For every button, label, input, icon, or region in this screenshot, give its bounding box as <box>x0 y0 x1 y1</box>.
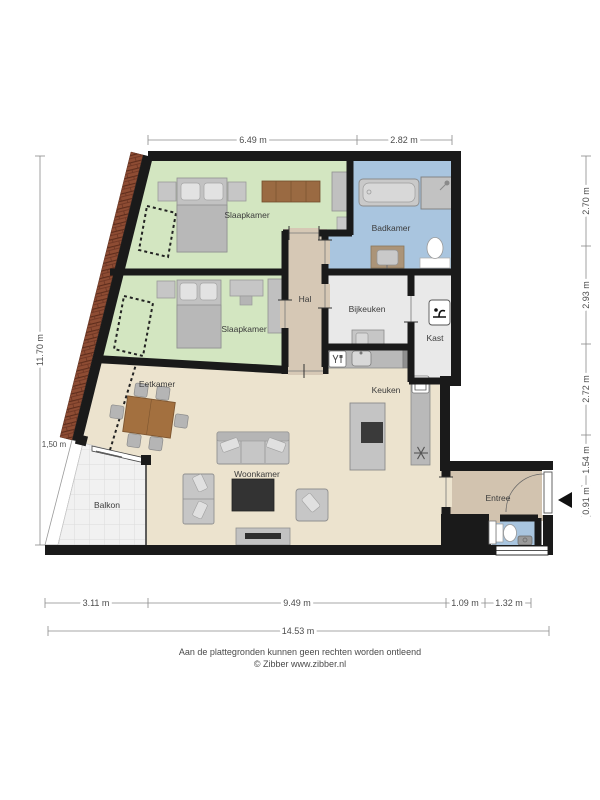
dishwasher-icon <box>329 351 346 367</box>
floors <box>83 155 552 545</box>
bed-blanket <box>177 305 221 348</box>
vanity-sink <box>377 250 398 265</box>
room-label-balkon: Balkon <box>94 500 120 510</box>
room-label-bijkeuken: Bijkeuken <box>349 304 386 314</box>
dim-right-4: 1.54 m <box>581 446 591 474</box>
toilet-tank <box>496 524 503 542</box>
coat-hook-icon <box>429 300 450 325</box>
toilet-bowl <box>427 238 443 259</box>
nightstand <box>158 182 176 201</box>
dim-bottom-total: 14.53 m <box>282 626 315 636</box>
dim-bottom-3: 1.09 m <box>451 598 479 608</box>
desk <box>230 280 263 296</box>
pillow <box>180 283 197 300</box>
toilet-base <box>420 258 450 268</box>
bed-blanket <box>177 205 227 252</box>
dim-top-1: 6.49 m <box>239 135 267 145</box>
washer-inner <box>356 333 368 345</box>
entry-door-leaf <box>544 472 552 513</box>
dining-chair <box>174 414 189 429</box>
dining-chair <box>127 433 142 448</box>
pillow <box>204 183 223 200</box>
pillow <box>181 183 200 200</box>
dining-chair <box>149 436 164 451</box>
floorplan-page: Slaapkamer Badkamer Hal Slaapkamer Bijke… <box>0 0 600 800</box>
room-label-woonkamer: Woonkamer <box>234 469 280 479</box>
dim-bottom-2: 9.49 m <box>283 598 311 608</box>
floorplan-drawing: Slaapkamer Badkamer Hal Slaapkamer Bijke… <box>0 0 600 800</box>
room-label-badkamer: Badkamer <box>372 223 411 233</box>
coffee-table <box>232 479 274 511</box>
footer-copyright: © Zibber www.zibber.nl <box>254 659 346 669</box>
dim-right-1: 2.70 m <box>581 187 591 215</box>
dim-right-3: 2.72 m <box>581 375 591 403</box>
room-kast <box>412 272 454 381</box>
cooktop <box>361 422 383 443</box>
dim-bottom-1: 3.11 m <box>83 598 110 608</box>
shelf <box>337 217 348 230</box>
toilet-bowl <box>504 525 517 542</box>
dim-top-2: 2.82 m <box>390 135 418 145</box>
dim-balkon: 1,50 m <box>42 440 67 449</box>
dim-right-2: 2.93 m <box>581 281 591 309</box>
dim-right-5: 0.91 m <box>581 487 591 515</box>
room-label-hal: Hal <box>299 294 312 304</box>
nightstand <box>228 182 246 201</box>
pillow <box>200 283 217 300</box>
dim-left-total: 11.70 m <box>35 334 45 366</box>
room-label-eetkamer: Eetkamer <box>139 379 176 389</box>
room-label-slaapkamer-boven: Slaapkamer <box>224 210 270 220</box>
desk-chair <box>240 296 252 305</box>
footer-disclaimer: Aan de plattegronden kunnen geen rechten… <box>179 647 421 657</box>
room-label-keuken: Keuken <box>372 385 401 395</box>
toilet-sink <box>518 536 532 545</box>
wall-block-toilet <box>441 514 491 546</box>
room-label-slaapkamer-onder: Slaapkamer <box>221 324 267 334</box>
nightstand <box>157 281 175 298</box>
sofa-back <box>217 432 289 441</box>
dining-chair <box>110 405 125 420</box>
dim-bottom-4: 1.32 m <box>495 598 523 608</box>
toilet-door-leaf <box>489 521 496 544</box>
room-label-kast: Kast <box>426 333 444 343</box>
wardrobe <box>332 172 347 211</box>
sink-tap <box>360 352 363 355</box>
tv <box>245 533 281 539</box>
entrance-arrow-icon <box>558 492 572 508</box>
room-label-entree: Entree <box>485 493 510 503</box>
wall-post <box>141 455 151 465</box>
